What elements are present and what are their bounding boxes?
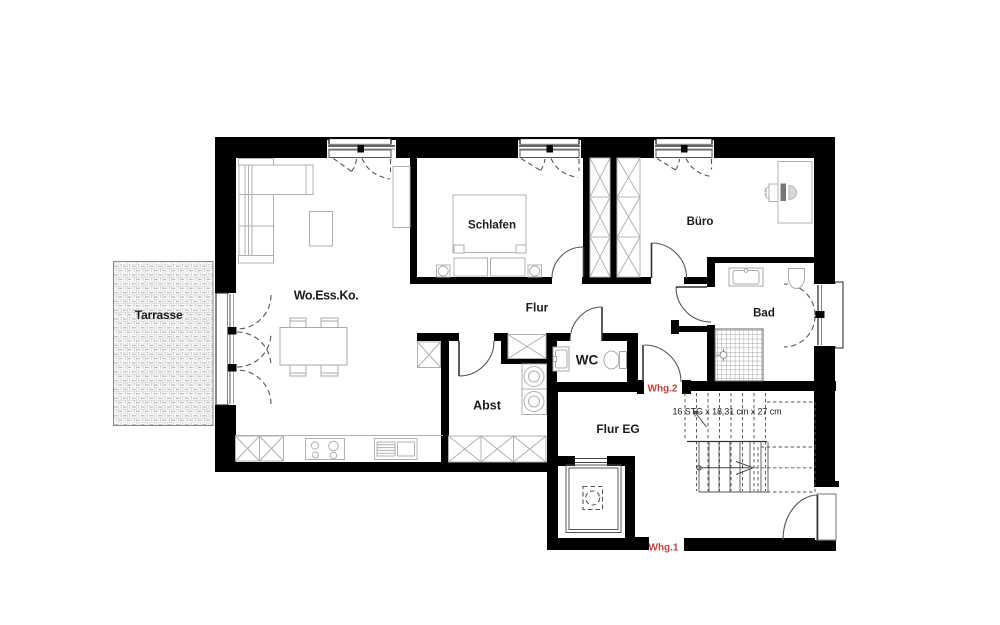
svg-text:Whg.2: Whg.2 (648, 384, 678, 395)
svg-text:Tarrasse: Tarrasse (135, 308, 183, 322)
svg-text:Wo.Ess.Ko.: Wo.Ess.Ko. (294, 289, 359, 303)
svg-text:Schlafen: Schlafen (468, 220, 516, 232)
svg-text:Abst: Abst (473, 399, 502, 413)
svg-text:Büro: Büro (687, 216, 714, 228)
svg-text:Flur: Flur (526, 301, 549, 315)
svg-text:Bad: Bad (753, 308, 775, 320)
svg-text:16 STG x 18,31 cm x 27 cm: 16 STG x 18,31 cm x 27 cm (672, 407, 781, 417)
svg-text:Whg.1: Whg.1 (649, 543, 679, 554)
svg-text:WC: WC (576, 353, 599, 368)
svg-text:Flur EG: Flur EG (596, 422, 639, 436)
